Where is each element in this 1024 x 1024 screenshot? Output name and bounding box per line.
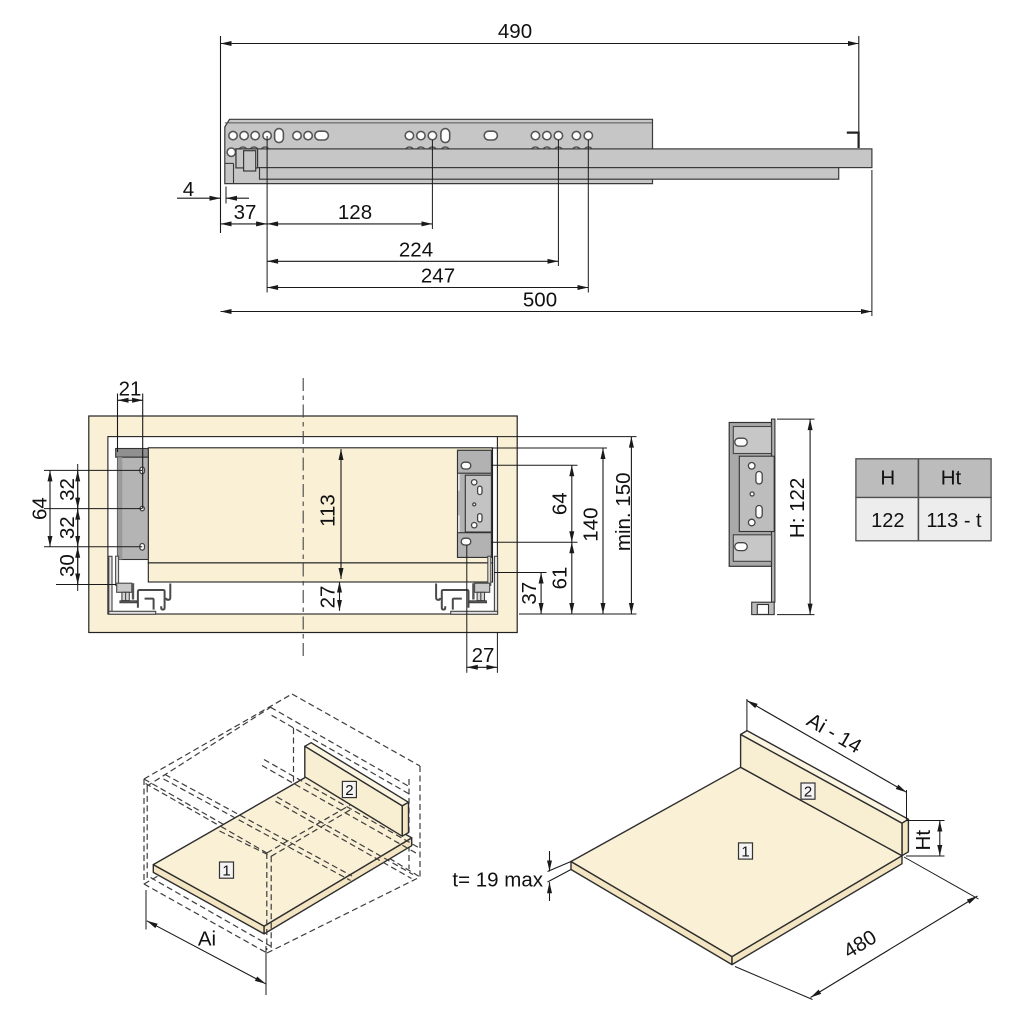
svg-text:Ht: Ht xyxy=(941,466,962,489)
svg-text:61: 61 xyxy=(549,567,572,590)
svg-text:113: 113 xyxy=(317,494,340,527)
svg-text:140: 140 xyxy=(580,507,603,541)
svg-text:21: 21 xyxy=(119,378,142,401)
svg-text:224: 224 xyxy=(399,238,433,261)
svg-text:32: 32 xyxy=(56,478,79,501)
svg-text:37: 37 xyxy=(518,582,541,605)
svg-text:64: 64 xyxy=(549,492,572,515)
svg-text:1: 1 xyxy=(222,863,230,880)
svg-text:113 - t: 113 - t xyxy=(926,510,982,532)
svg-text:128: 128 xyxy=(338,201,372,224)
svg-text:27: 27 xyxy=(317,586,340,609)
svg-text:490: 490 xyxy=(498,20,532,43)
svg-text:247: 247 xyxy=(421,265,455,288)
svg-text:Ai: Ai xyxy=(198,928,216,951)
svg-text:H: H xyxy=(880,466,895,489)
svg-text:30: 30 xyxy=(56,554,79,577)
svg-text:t= 19 max: t= 19 max xyxy=(452,869,543,892)
svg-text:37: 37 xyxy=(234,201,257,224)
svg-text:4: 4 xyxy=(183,178,194,201)
svg-text:2: 2 xyxy=(345,782,353,799)
svg-text:2: 2 xyxy=(804,784,812,801)
svg-text:H: 122: H: 122 xyxy=(786,478,809,538)
svg-text:32: 32 xyxy=(56,516,79,539)
svg-text:122: 122 xyxy=(871,510,904,532)
svg-text:27: 27 xyxy=(472,644,495,667)
svg-text:Ht: Ht xyxy=(912,830,935,851)
svg-text:64: 64 xyxy=(29,497,52,520)
svg-text:1: 1 xyxy=(741,844,749,861)
svg-text:min. 150: min. 150 xyxy=(612,472,635,551)
svg-text:500: 500 xyxy=(523,289,557,312)
